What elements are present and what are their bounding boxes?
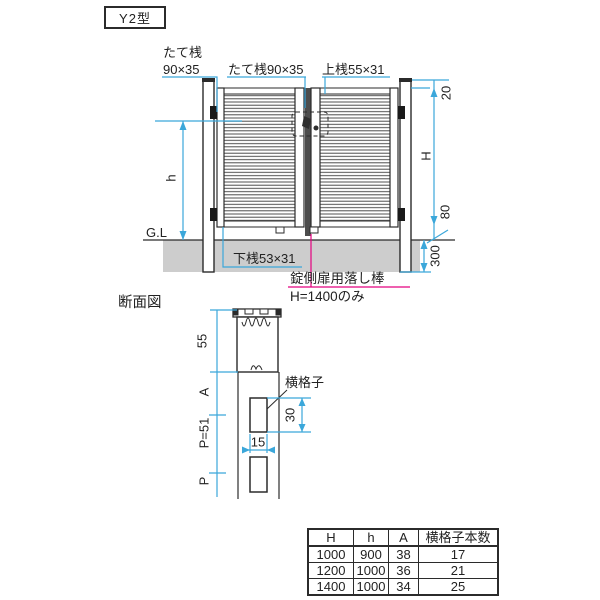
left-leaf-foot <box>276 227 284 233</box>
dim-P-text: P <box>197 477 212 486</box>
lattice-slat-1 <box>250 398 267 432</box>
hinge-top-left <box>210 106 217 119</box>
dim-H-text: H <box>419 151 434 160</box>
hinge-bottom-right <box>398 208 405 221</box>
dim-80-slash <box>427 230 448 243</box>
label-vertical-rail-left-line1: たて桟 <box>163 45 202 60</box>
dim-300-arrow-top <box>421 240 428 249</box>
right-post-cap <box>399 78 412 82</box>
cell-A: 34 <box>389 579 419 596</box>
dim-30-text: 30 <box>283 408 298 422</box>
right-leaf-bottom-rail <box>320 221 390 227</box>
cell-H: 1200 <box>308 563 354 579</box>
note-line2: H=1400のみ <box>290 289 365 304</box>
spec-header-h: h <box>354 529 389 546</box>
cross-section-drawing: 断面図 横格子 <box>118 294 324 499</box>
cell-H: 1000 <box>308 546 354 563</box>
spec-header-H: H <box>308 529 354 546</box>
technical-drawing-svg: たて桟 90×35 たて桟90×35 上桟55×31 下桟53×31 G.L h <box>0 0 600 600</box>
spec-table-header: H h A 横格子本数 <box>308 529 498 546</box>
section-dimension-chain <box>209 310 238 497</box>
section-title: 断面図 <box>118 294 162 311</box>
cell-h: 1000 <box>354 563 389 579</box>
dim-h-arrow-bottom <box>180 231 187 240</box>
dimension-15: 15 <box>242 434 275 454</box>
dim-h-text: h <box>164 174 179 181</box>
left-leaf-hinge-stile <box>217 88 224 227</box>
dim-h-arrow-top <box>180 121 187 130</box>
title-badge-label: Y2型 <box>119 8 151 27</box>
dim-30-arrow-top <box>299 398 306 406</box>
dim-30-arrow-bottom <box>299 424 306 432</box>
cell-A: 36 <box>389 563 419 579</box>
profile-cap <box>233 309 281 317</box>
dim-20-text: 20 <box>439 86 454 100</box>
right-leaf-hinge-stile <box>390 88 398 227</box>
lattice-leader <box>267 390 287 409</box>
profile-cap-notch-1 <box>245 309 253 314</box>
top-rail-profile <box>233 309 281 372</box>
dim-300-arrow-bottom <box>421 263 428 272</box>
drop-bar-guide <box>310 227 318 233</box>
dim-15-text: 15 <box>251 435 265 450</box>
lock-knob <box>314 126 319 131</box>
cell-H: 1400 <box>308 579 354 596</box>
title-badge: Y2型 <box>104 6 166 29</box>
table-row: 1400 1000 34 25 <box>308 579 498 596</box>
cell-h: 900 <box>354 546 389 563</box>
profile-cap-notch-2 <box>260 309 268 314</box>
left-leaf-top-rail <box>224 88 295 94</box>
dim-15-arrow-right <box>267 447 275 454</box>
cell-lattice-count: 25 <box>419 579 499 596</box>
label-vertical-rail-left-line2: 90×35 <box>163 62 200 77</box>
dim-A-text: A <box>197 387 212 396</box>
label-lattice: 横格子 <box>285 375 324 390</box>
lattice-slat-2 <box>250 457 267 492</box>
right-leaf-meeting-stile <box>311 88 320 227</box>
spec-table: H h A 横格子本数 1000 900 38 17 1200 1000 36 … <box>307 528 499 596</box>
left-leaf-louver-panel <box>224 94 295 221</box>
note-line1: 錠側扉用落し棒 <box>290 271 385 286</box>
dim-55-text: 55 <box>195 334 210 348</box>
hinge-bottom-left <box>210 208 217 221</box>
label-bottom-rail: 下桟53×31 <box>233 251 296 266</box>
cell-lattice-count: 17 <box>419 546 499 563</box>
drawing-sheet: Y2型 <box>0 0 600 600</box>
profile-cap-end-right <box>276 309 281 315</box>
cell-A: 38 <box>389 546 419 563</box>
table-row: 1000 900 38 17 <box>308 546 498 563</box>
right-leaf-top-rail <box>320 88 390 94</box>
hinge-top-right <box>398 106 405 119</box>
dim-15-arrow-left <box>242 447 250 454</box>
gate-elevation-drawing: たて桟 90×35 たて桟90×35 上桟55×31 下桟53×31 G.L h <box>143 45 455 304</box>
label-vertical-rail-center: たて桟90×35 <box>228 62 304 77</box>
cell-h: 1000 <box>354 579 389 596</box>
spec-header-A: A <box>389 529 419 546</box>
dim-H-arrow-bottom <box>431 216 438 225</box>
dim-H-arrow-top <box>431 88 438 97</box>
dim-P51-text: P=51 <box>197 418 212 449</box>
dim-80-text: 80 <box>438 205 453 219</box>
label-ground-line: G.L <box>146 225 167 240</box>
dim-300-text: 300 <box>428 245 443 267</box>
right-gate-leaf <box>311 88 398 227</box>
label-top-rail: 上桟55×31 <box>322 62 385 77</box>
left-gate-leaf <box>217 88 304 227</box>
left-post-cap <box>202 78 215 82</box>
spec-header-lattice-count: 横格子本数 <box>419 529 499 546</box>
table-row: 1200 1000 36 21 <box>308 563 498 579</box>
cell-lattice-count: 21 <box>419 563 499 579</box>
right-leaf-louver-panel <box>320 94 390 221</box>
left-leaf-bottom-rail <box>224 221 295 227</box>
left-leaf-meeting-stile <box>295 88 304 227</box>
drop-bar <box>305 88 311 236</box>
